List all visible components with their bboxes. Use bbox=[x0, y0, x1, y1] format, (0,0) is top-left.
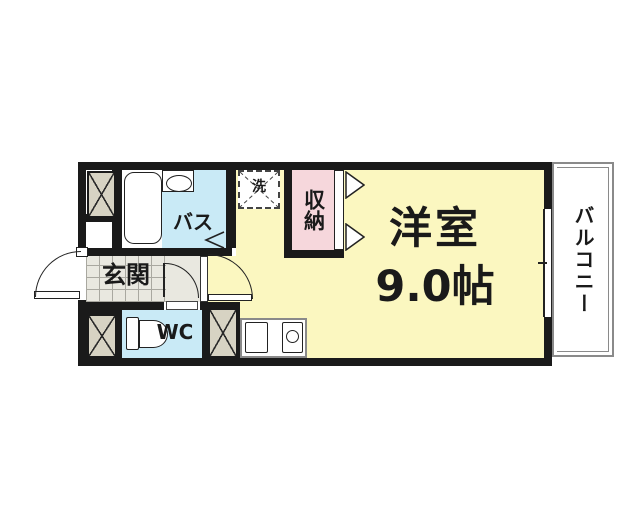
wall-segment bbox=[78, 358, 552, 366]
front-door-swing-arc bbox=[35, 251, 81, 297]
wall-segment bbox=[78, 302, 164, 310]
kitchen-sink bbox=[245, 322, 268, 353]
window-latch-icon bbox=[538, 262, 547, 264]
bath-sink-icon bbox=[166, 175, 192, 192]
main-room-size-label: 9.0帖 bbox=[340, 264, 530, 311]
wall-segment bbox=[544, 162, 552, 210]
bath-label: バス bbox=[160, 211, 226, 233]
wall-segment bbox=[78, 162, 86, 252]
floor-plan: 洋室 9.0帖 収納 バス 洗 玄関 WC バルコニー bbox=[0, 0, 640, 512]
balcony-label: バルコニー bbox=[552, 162, 614, 357]
hall-door-leaf bbox=[208, 294, 252, 301]
stove-burner-icon bbox=[286, 330, 299, 343]
bathtub-icon bbox=[124, 172, 162, 244]
toilet-tank-icon bbox=[126, 317, 139, 350]
column-x-icon bbox=[87, 314, 117, 358]
wall-segment bbox=[544, 317, 552, 366]
closet-label: 収納 bbox=[292, 172, 334, 248]
entrance-label: 玄関 bbox=[88, 262, 164, 288]
closet-door-arrow-icon bbox=[345, 171, 365, 199]
wc-label: WC bbox=[150, 321, 200, 343]
wall-segment bbox=[226, 170, 236, 248]
column-x-icon bbox=[208, 308, 238, 358]
main-room-label: 洋室 bbox=[340, 206, 530, 253]
wc-door-sill bbox=[166, 301, 198, 310]
hall-door-frame bbox=[200, 256, 208, 302]
column-x-icon bbox=[87, 171, 116, 218]
laundry-label: 洗 bbox=[238, 180, 280, 195]
